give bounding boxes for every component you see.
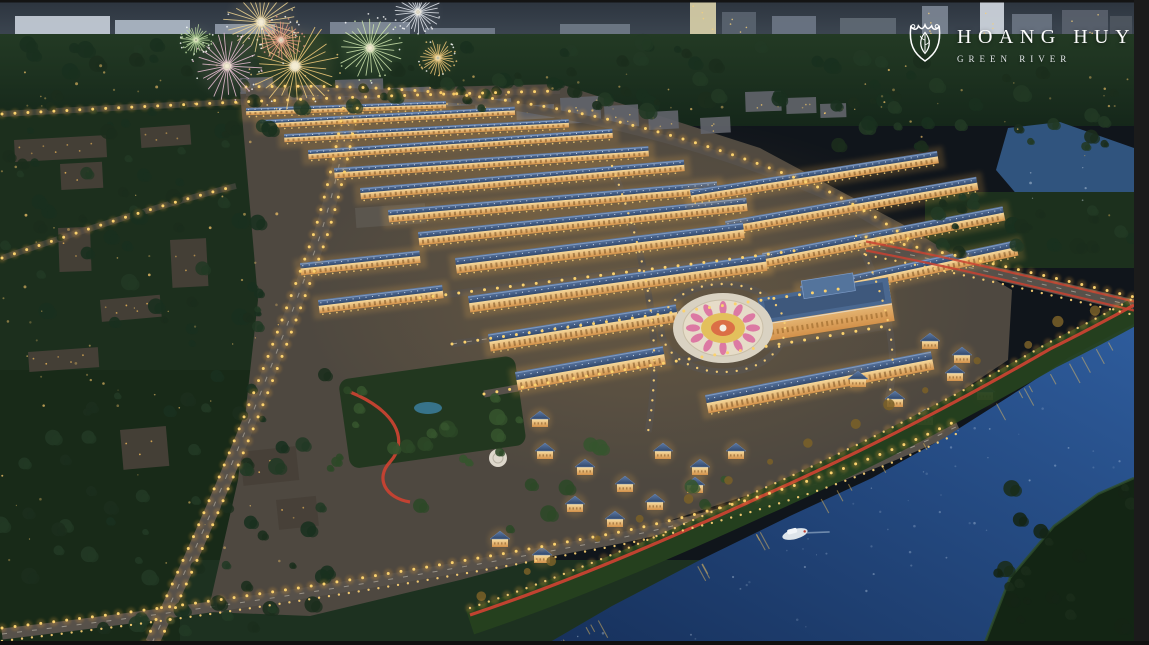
tree-crown <box>837 142 847 152</box>
tree-crown <box>193 447 201 455</box>
window-glint <box>232 343 233 344</box>
tree-crown <box>138 559 143 564</box>
water-sparkle <box>873 573 875 575</box>
tree-crown <box>910 73 917 80</box>
burst-spark <box>430 26 432 28</box>
burst-spark <box>399 49 401 51</box>
brand-name: HOANG HUY <box>957 26 1136 49</box>
water-sparkle <box>816 554 817 555</box>
window-glint <box>1017 128 1019 130</box>
tree-crown <box>361 389 368 396</box>
tree-crown <box>423 441 433 451</box>
water-sparkle <box>786 550 788 552</box>
window-glint <box>154 394 156 396</box>
window-glint <box>75 82 78 85</box>
tree-crown <box>69 68 81 80</box>
tree-crown <box>86 250 95 259</box>
tree-crown <box>431 431 438 438</box>
burst-spark <box>403 28 405 30</box>
tree-crown <box>677 48 682 53</box>
tree-crown <box>480 106 486 112</box>
villa <box>724 440 748 464</box>
burst-spark <box>261 28 263 30</box>
tree-crown <box>494 396 501 403</box>
window-glint <box>7 320 10 323</box>
tree-crown <box>717 93 728 104</box>
window-glint <box>221 195 223 197</box>
tree-crown <box>621 59 629 67</box>
tree-crown <box>1008 585 1015 592</box>
tree-crown <box>56 93 64 101</box>
tree-crown <box>355 423 360 428</box>
tree-crown <box>639 56 649 66</box>
tree-crown <box>517 81 523 87</box>
water-sparkle <box>748 581 750 583</box>
water-sparkle <box>908 500 909 501</box>
burst-spark <box>269 20 271 22</box>
tree-crown <box>82 217 88 223</box>
burst-spark <box>196 77 198 79</box>
burst-spark <box>345 22 347 24</box>
burst-spark <box>298 24 300 26</box>
water-sparkle <box>946 557 948 559</box>
window-glint <box>2 297 4 299</box>
window-glint <box>53 227 54 228</box>
tree-crown <box>142 172 151 181</box>
tree-crown <box>249 520 259 530</box>
burst-ray <box>418 14 419 33</box>
tree-crown <box>195 499 201 505</box>
tree-crown <box>184 628 192 636</box>
lit-tree <box>767 459 773 465</box>
tree-crown <box>177 225 184 232</box>
tree-crown <box>26 41 38 53</box>
window-glint <box>249 141 252 144</box>
water-sparkle <box>913 525 916 528</box>
skyline-lit-window <box>928 13 930 15</box>
apartment-block-body <box>140 125 191 148</box>
burst-spark <box>264 51 266 53</box>
window-glint <box>204 524 205 525</box>
burst-core <box>366 44 374 52</box>
channel-sparkle <box>1029 182 1032 185</box>
tree-crown <box>22 162 30 170</box>
burst-spark <box>424 30 426 32</box>
channel-sparkle <box>1082 199 1084 201</box>
crest-icon <box>906 18 944 71</box>
window-glint <box>883 101 885 103</box>
tree-crown <box>307 526 318 537</box>
tree-crown <box>604 96 614 106</box>
water-sparkle <box>939 511 941 513</box>
water-sparkle <box>694 638 696 640</box>
burst-spark <box>296 22 298 24</box>
window-glint <box>99 64 102 67</box>
tree-crown <box>8 154 17 163</box>
tree-crown <box>135 57 145 67</box>
burst-spark <box>205 51 207 53</box>
window-glint <box>243 213 246 216</box>
burst-spark <box>259 36 261 38</box>
tree-crown <box>186 69 194 77</box>
tree-crown <box>1070 596 1076 602</box>
tree-crown <box>625 89 632 96</box>
window-glint <box>135 195 136 196</box>
tree-crown <box>936 211 946 221</box>
tree-crown <box>395 66 406 77</box>
burst-spark <box>418 61 420 63</box>
tree-crown <box>19 173 24 178</box>
plaza-petal <box>719 301 726 315</box>
tree-crown <box>499 450 505 456</box>
tree-crown <box>852 100 860 108</box>
water-sparkle <box>807 538 809 540</box>
tree-crown <box>247 315 254 322</box>
burst-spark <box>276 108 278 110</box>
tree-crown <box>1004 566 1016 578</box>
tree-crown <box>145 531 149 535</box>
tree <box>916 140 929 152</box>
tree-crown <box>301 441 311 451</box>
tree-crown <box>257 308 261 312</box>
tree-crown <box>960 123 968 131</box>
burst-core <box>436 56 441 61</box>
water-sparkle <box>925 472 928 475</box>
burst-spark <box>208 45 210 47</box>
tree <box>831 138 847 152</box>
burst-spark <box>438 16 440 18</box>
water-sparkle <box>910 565 912 567</box>
tree-crown <box>760 44 769 53</box>
burst-spark <box>392 28 394 30</box>
window-glint <box>275 304 278 307</box>
window-glint <box>1 475 3 477</box>
tree-crown <box>955 225 960 230</box>
tree-crown <box>1041 70 1050 79</box>
tree-crown <box>867 120 878 131</box>
tree-crown <box>268 125 280 137</box>
burst-core <box>278 37 284 43</box>
villa <box>533 440 557 464</box>
water-sparkle <box>870 545 872 547</box>
tree-crown <box>1039 528 1050 539</box>
tree-crown <box>191 300 198 307</box>
tree-crown <box>942 202 948 208</box>
tree-crown <box>972 201 980 209</box>
apartment-block-body <box>120 426 169 470</box>
tree-crown <box>573 88 583 98</box>
skyline-lit-window <box>985 13 987 15</box>
tree-crown <box>1006 76 1012 82</box>
tree-crown <box>262 418 267 423</box>
tree-crown <box>38 199 49 210</box>
tree-crown <box>231 125 242 136</box>
edge-apartment-body <box>700 116 731 134</box>
edge-apartment <box>700 116 731 134</box>
tree-crown <box>109 505 119 515</box>
tree-crown <box>153 57 159 63</box>
tree-crown <box>1051 594 1061 604</box>
tree-crown <box>225 142 230 147</box>
water-sparkle <box>690 634 692 636</box>
burst-spark <box>383 16 385 18</box>
channel-sparkle <box>1082 167 1083 168</box>
tree-crown <box>151 110 157 116</box>
tree-crown <box>656 101 660 105</box>
burst-spark <box>186 26 188 28</box>
water-sparkle <box>865 590 867 592</box>
window-glint <box>117 389 118 390</box>
burst-spark <box>442 73 444 75</box>
tree-crown <box>196 564 205 573</box>
tree-crown <box>141 493 150 502</box>
tree-crown <box>1069 612 1077 620</box>
villa <box>846 368 870 392</box>
window-glint <box>446 103 448 105</box>
tree-crown <box>926 121 935 130</box>
water-sparkle <box>1041 407 1044 410</box>
tree-crown <box>128 157 133 162</box>
water-sparkle <box>909 551 912 554</box>
tree-crown <box>122 190 129 197</box>
tree-crown <box>547 510 559 522</box>
skyline-lit-window <box>730 23 732 25</box>
burst-spark <box>385 18 387 20</box>
skyline-lit-window <box>692 5 694 7</box>
tree-crown <box>23 461 32 470</box>
tree-crown <box>225 563 231 569</box>
tree-crown <box>246 584 254 592</box>
burst-spark <box>212 34 214 36</box>
tree-crown <box>392 445 401 454</box>
window-glint <box>218 112 219 113</box>
tree-crown <box>45 307 57 319</box>
tree-crown <box>894 93 902 101</box>
window-glint <box>1127 78 1129 80</box>
window-glint <box>612 108 613 109</box>
tree-crown <box>58 548 65 555</box>
window-glint <box>670 107 672 109</box>
plaza-center-dot <box>720 325 727 332</box>
tree-crown <box>257 324 265 332</box>
tree-crown <box>86 410 92 416</box>
tree-crown <box>258 291 265 298</box>
edge-apartment-body <box>786 97 817 114</box>
burst-spark <box>455 60 457 62</box>
tree-crown <box>262 533 269 540</box>
burst-spark <box>399 37 401 39</box>
villa <box>603 508 627 532</box>
burst-spark <box>255 83 257 85</box>
tree-crown <box>1091 244 1100 253</box>
window-glint <box>577 81 580 84</box>
tree-crown <box>1076 243 1088 255</box>
villa <box>573 456 597 480</box>
edge-apartment <box>786 97 817 114</box>
tree-crown <box>1121 623 1133 635</box>
tree-crown <box>27 511 36 520</box>
window-glint <box>26 355 28 357</box>
window-glint <box>67 228 70 231</box>
burst-spark <box>417 33 419 35</box>
tree-crown <box>1104 142 1109 147</box>
central-plaza <box>673 293 773 363</box>
water-sparkle <box>987 457 989 459</box>
tree-crown <box>110 234 120 244</box>
burst-spark <box>379 75 381 77</box>
window-glint <box>148 255 150 257</box>
tree-crown <box>47 208 57 218</box>
window-glint <box>892 88 895 91</box>
tree-crown <box>256 219 267 230</box>
burst-spark <box>341 65 343 67</box>
window-glint <box>472 75 475 78</box>
tree-crown <box>1020 618 1026 624</box>
tree-crown <box>1018 581 1025 588</box>
window-glint <box>137 90 139 92</box>
burst-spark <box>450 43 452 45</box>
window-glint <box>26 105 28 107</box>
window-glint <box>1104 88 1107 91</box>
tree-crown <box>155 42 165 52</box>
burst-spark <box>371 82 373 84</box>
tree-crown <box>87 434 97 444</box>
water-sparkle <box>923 471 924 472</box>
tree-crown <box>30 129 35 134</box>
window-glint <box>888 69 890 71</box>
tree-crown <box>1039 212 1046 219</box>
tree-crown <box>179 180 185 186</box>
tree-crown <box>222 200 230 208</box>
burst-spark <box>226 26 228 28</box>
villa <box>613 473 637 497</box>
tree-crown <box>565 484 576 495</box>
window-glint <box>36 339 38 341</box>
tree-crown <box>205 406 212 413</box>
water-sparkle <box>989 428 991 430</box>
tree-crown <box>778 96 789 107</box>
burst-spark <box>426 70 428 72</box>
burst-spark <box>185 52 187 54</box>
tree-crown <box>935 82 946 93</box>
apartment-block <box>140 125 191 148</box>
scene-svg <box>0 0 1149 645</box>
burst-spark <box>258 71 260 73</box>
window-glint <box>1049 97 1051 99</box>
tree-crown <box>226 613 234 621</box>
tree-crown <box>570 70 577 77</box>
skyline-lit-window <box>731 19 733 21</box>
lit-tree <box>524 568 531 575</box>
tree-crown <box>275 463 287 475</box>
window-glint <box>551 87 553 89</box>
burst-spark <box>251 88 253 90</box>
tree-crown <box>330 467 335 472</box>
tree-crown <box>320 505 327 512</box>
tree-crown <box>238 217 249 228</box>
burst-spark <box>384 74 386 76</box>
window-glint <box>14 166 17 169</box>
burst-core <box>289 60 300 71</box>
window-glint <box>42 404 45 407</box>
window-glint <box>960 89 962 91</box>
window-glint <box>188 501 190 503</box>
window-glint <box>178 407 180 409</box>
water-sparkle <box>577 636 578 637</box>
tree-crown <box>698 76 708 86</box>
window-glint <box>1103 95 1105 97</box>
tree-crown <box>893 105 902 114</box>
tree-crown <box>335 460 342 467</box>
window-glint <box>937 103 938 104</box>
tree-crown <box>690 484 700 494</box>
window-glint <box>668 89 670 91</box>
tree-crown <box>1019 517 1029 527</box>
apartment-block <box>120 426 169 470</box>
tree-crown <box>163 318 168 323</box>
tree-crown <box>34 161 40 167</box>
window-glint <box>854 109 855 110</box>
tree-crown <box>646 108 658 120</box>
tree-crown <box>897 125 903 131</box>
brand-subtitle: GREEN RIVER <box>957 54 1136 64</box>
burst-spark <box>438 75 440 77</box>
tree-crown <box>1052 121 1061 130</box>
tree-crown <box>496 432 506 442</box>
window-glint <box>278 324 279 325</box>
water-sparkle <box>940 494 941 495</box>
tree-crown <box>358 406 366 414</box>
burst-spark <box>291 9 293 11</box>
channel-sparkle <box>1032 198 1033 199</box>
tree-crown <box>114 320 122 328</box>
burst-spark <box>452 46 454 48</box>
tree-crown <box>339 456 344 461</box>
tree-crown <box>563 51 569 57</box>
water-sparkle <box>732 576 734 578</box>
window-glint <box>25 214 28 217</box>
tree-crown <box>57 526 67 536</box>
window-glint <box>223 546 226 549</box>
tree-crown <box>85 171 94 180</box>
lit-tree <box>724 476 733 485</box>
burst-spark <box>301 33 303 35</box>
burst-spark <box>271 100 273 102</box>
window-glint <box>134 307 135 308</box>
tree-crown <box>921 144 929 152</box>
tree-crown <box>694 60 704 70</box>
water-sparkle <box>1029 479 1031 481</box>
tree-crown <box>641 39 653 51</box>
window-glint <box>1004 121 1006 123</box>
window-glint <box>41 105 43 107</box>
tree-crown <box>598 444 610 456</box>
tree-crown <box>245 467 255 477</box>
tree-crown <box>960 207 967 214</box>
tree-crown <box>38 224 47 233</box>
burst-spark <box>266 104 268 106</box>
burst-spark <box>227 13 229 15</box>
window-glint <box>255 337 256 338</box>
tree-crown <box>186 396 196 406</box>
channel-sparkle <box>1084 155 1085 156</box>
burst-spark <box>395 19 397 21</box>
frame-top <box>0 0 1149 3</box>
burst-spark <box>253 84 255 86</box>
window-glint <box>41 311 42 312</box>
skyline-lit-window <box>703 18 705 20</box>
tree-crown <box>497 77 507 87</box>
